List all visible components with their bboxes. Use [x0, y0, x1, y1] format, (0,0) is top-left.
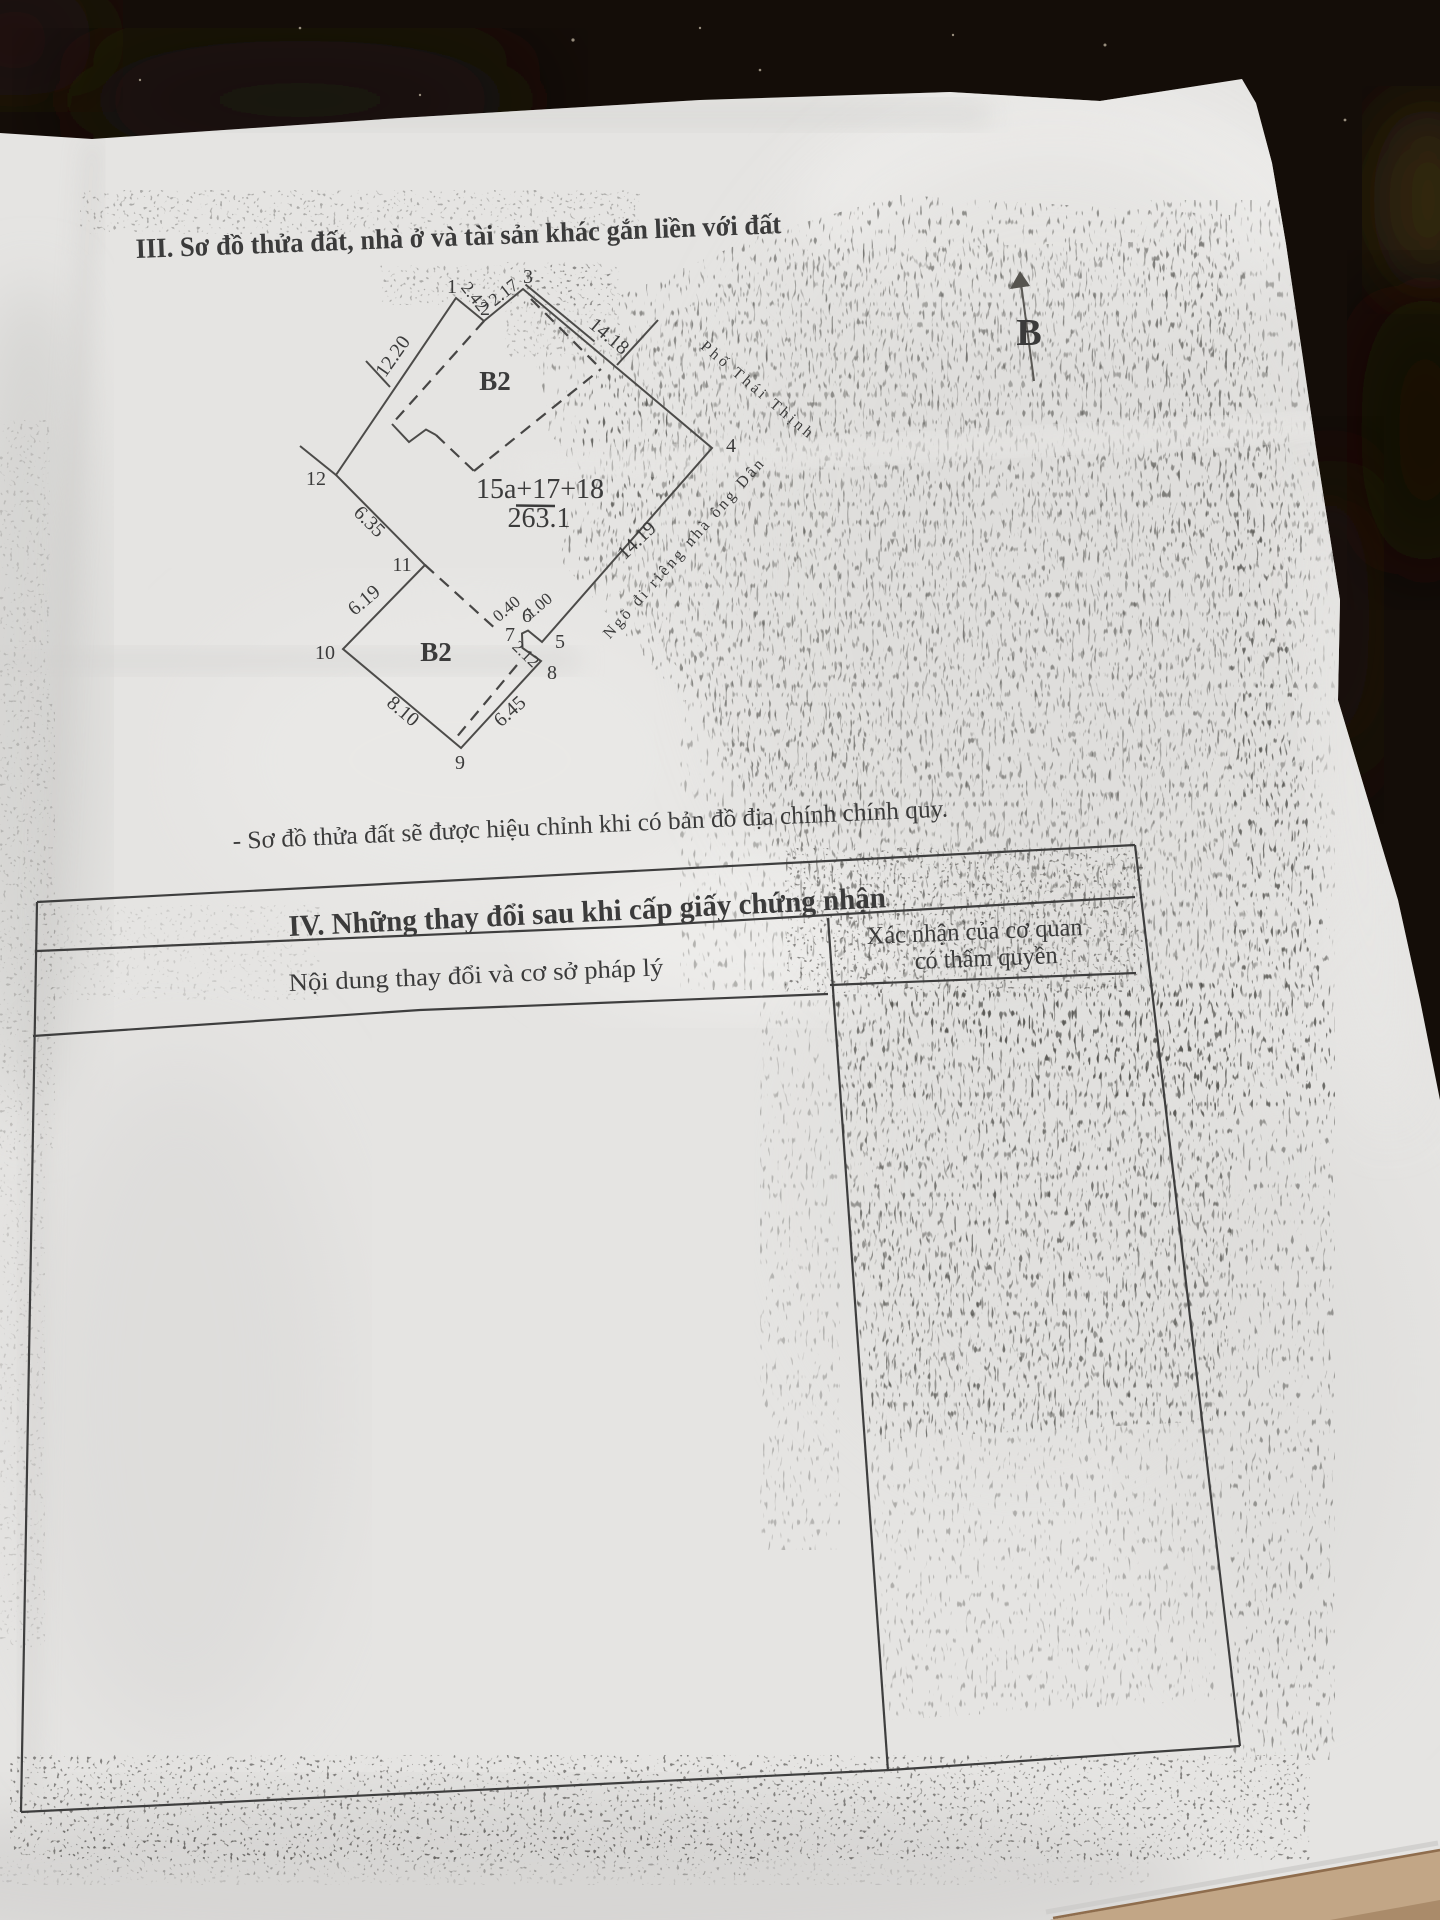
svg-text:11: 11: [392, 554, 411, 576]
svg-text:1: 1: [447, 276, 457, 298]
svg-text:8: 8: [547, 662, 557, 684]
svg-text:263.1: 263.1: [508, 503, 571, 534]
svg-text:4: 4: [726, 435, 736, 457]
svg-text:B2: B2: [420, 637, 452, 667]
svg-text:7: 7: [505, 624, 515, 646]
svg-text:9: 9: [455, 752, 465, 774]
svg-text:12: 12: [306, 468, 326, 490]
svg-text:15a+17+18: 15a+17+18: [476, 474, 604, 505]
svg-text:10: 10: [315, 642, 335, 664]
svg-text:3: 3: [523, 266, 533, 288]
svg-text:B: B: [1016, 312, 1041, 354]
svg-text:5: 5: [555, 631, 565, 653]
svg-text:B2: B2: [479, 366, 511, 396]
